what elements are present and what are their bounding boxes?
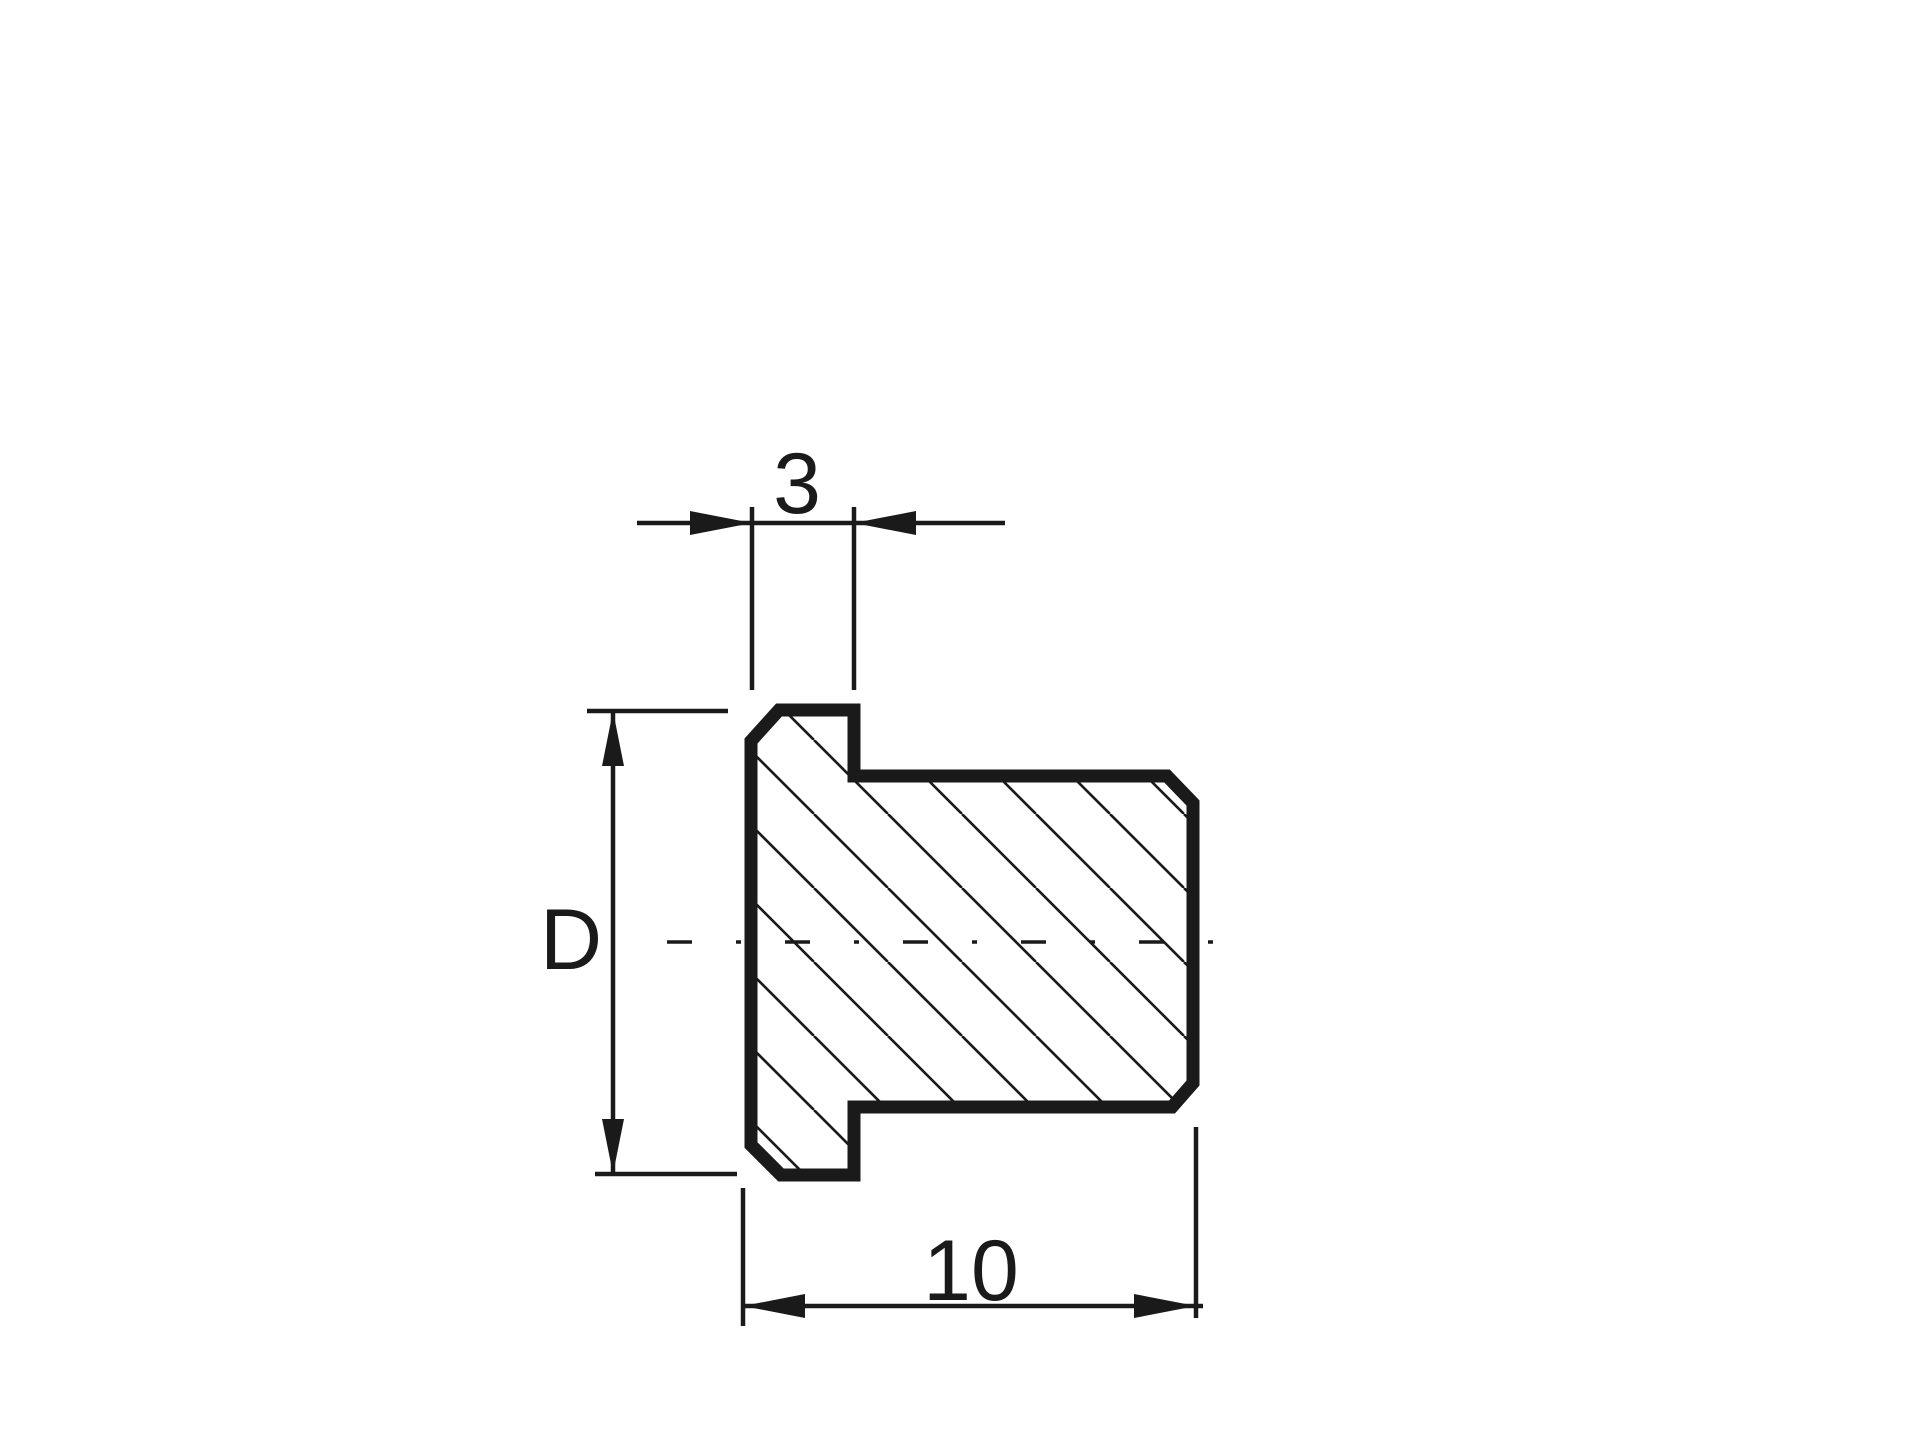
drawing-canvas: 3 D 10 [0,0,1920,1440]
dimension-flange-width: 3 [637,436,1005,690]
arrowhead-right-icon [1134,1294,1196,1318]
arrowhead-up-icon [602,711,624,766]
arrowhead-left-icon [743,1294,805,1318]
technical-drawing: 3 D 10 [0,0,1920,1440]
arrowhead-right-icon [854,511,916,535]
dimension-label-diameter: D [540,892,602,988]
arrowhead-left-icon [690,511,752,535]
dimension-label-overall-length: 10 [923,1223,1019,1319]
dimension-diameter: D [540,711,737,1174]
dimension-label-flange-width: 3 [773,436,821,532]
arrowhead-down-icon [602,1119,624,1174]
